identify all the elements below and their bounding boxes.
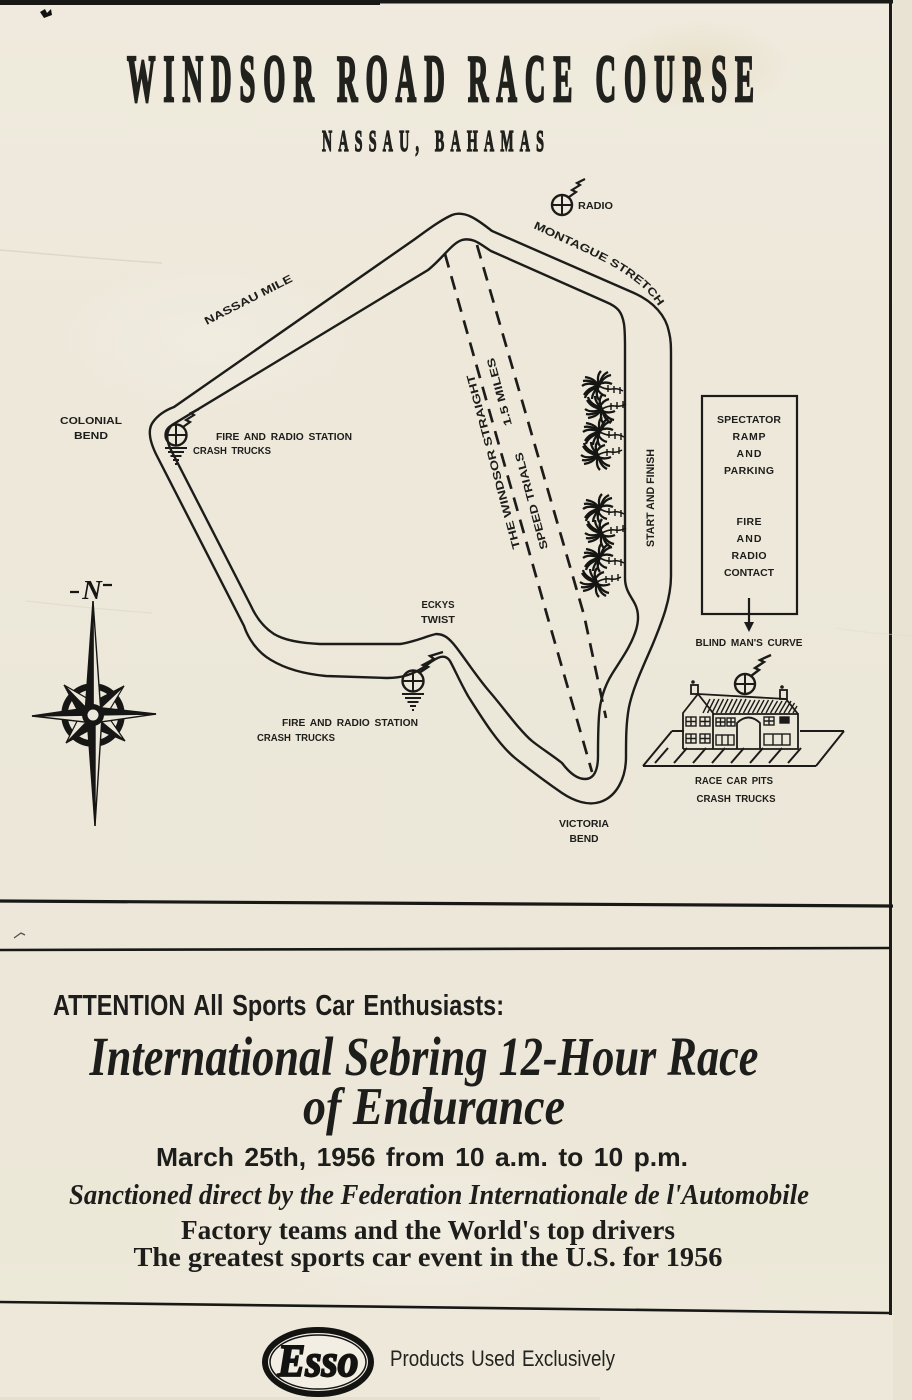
svg-text:PARKING: PARKING bbox=[724, 465, 774, 477]
svg-text:FIRE AND RADIO STATION: FIRE AND RADIO STATION bbox=[216, 431, 352, 443]
svg-text:Factory teams and the World's: Factory teams and the World's top driver… bbox=[181, 1215, 675, 1245]
svg-text:Products Used Exclusively: Products Used Exclusively bbox=[390, 1346, 615, 1371]
svg-text:ECKYS: ECKYS bbox=[422, 599, 455, 611]
svg-text:CRASH TRUCKS: CRASH TRUCKS bbox=[193, 445, 271, 457]
svg-text:WINDSOR ROAD RACE COURSE: WINDSOR ROAD RACE COURSE bbox=[127, 42, 754, 116]
svg-text:N: N bbox=[81, 575, 103, 605]
svg-text:RAMP: RAMP bbox=[733, 431, 766, 443]
svg-text:RACE CAR PITS: RACE CAR PITS bbox=[695, 775, 773, 787]
svg-text:of Endurance: of Endurance bbox=[303, 1078, 565, 1136]
svg-text:CRASH TRUCKS: CRASH TRUCKS bbox=[697, 793, 776, 805]
svg-text:AND: AND bbox=[737, 533, 762, 545]
svg-text:Esso: Esso bbox=[277, 1336, 359, 1386]
svg-text:BEND: BEND bbox=[570, 833, 599, 845]
svg-text:ATTENTION All Sports Car Enthu: ATTENTION All Sports Car Enthusiasts: bbox=[53, 990, 504, 1022]
svg-text:TWIST: TWIST bbox=[421, 614, 456, 626]
svg-text:BEND: BEND bbox=[74, 430, 108, 442]
svg-text:AND: AND bbox=[737, 448, 762, 460]
svg-text:BLIND MAN'S CURVE: BLIND MAN'S CURVE bbox=[696, 637, 803, 649]
svg-text:FIRE AND RADIO STATION: FIRE AND RADIO STATION bbox=[282, 717, 418, 729]
svg-text:COLONIAL: COLONIAL bbox=[60, 415, 123, 427]
svg-text:FIRE: FIRE bbox=[737, 516, 762, 528]
svg-text:VICTORIA: VICTORIA bbox=[559, 818, 609, 830]
svg-text:Sanctioned direct by the Feder: Sanctioned direct by the Federation Inte… bbox=[69, 1179, 809, 1211]
svg-text:START AND FINISH: START AND FINISH bbox=[645, 449, 657, 547]
svg-text:RADIO: RADIO bbox=[732, 550, 767, 562]
svg-text:The greatest sports car event: The greatest sports car event in the U.S… bbox=[134, 1242, 723, 1272]
svg-text:SPECTATOR: SPECTATOR bbox=[717, 414, 781, 426]
svg-text:CONTACT: CONTACT bbox=[724, 567, 775, 579]
svg-text:March 25th, 1956 from 10 a.m.: March 25th, 1956 from 10 a.m. to 10 p.m. bbox=[156, 1142, 688, 1172]
svg-text:CRASH TRUCKS: CRASH TRUCKS bbox=[257, 732, 335, 744]
svg-text:RADIO: RADIO bbox=[578, 201, 613, 212]
